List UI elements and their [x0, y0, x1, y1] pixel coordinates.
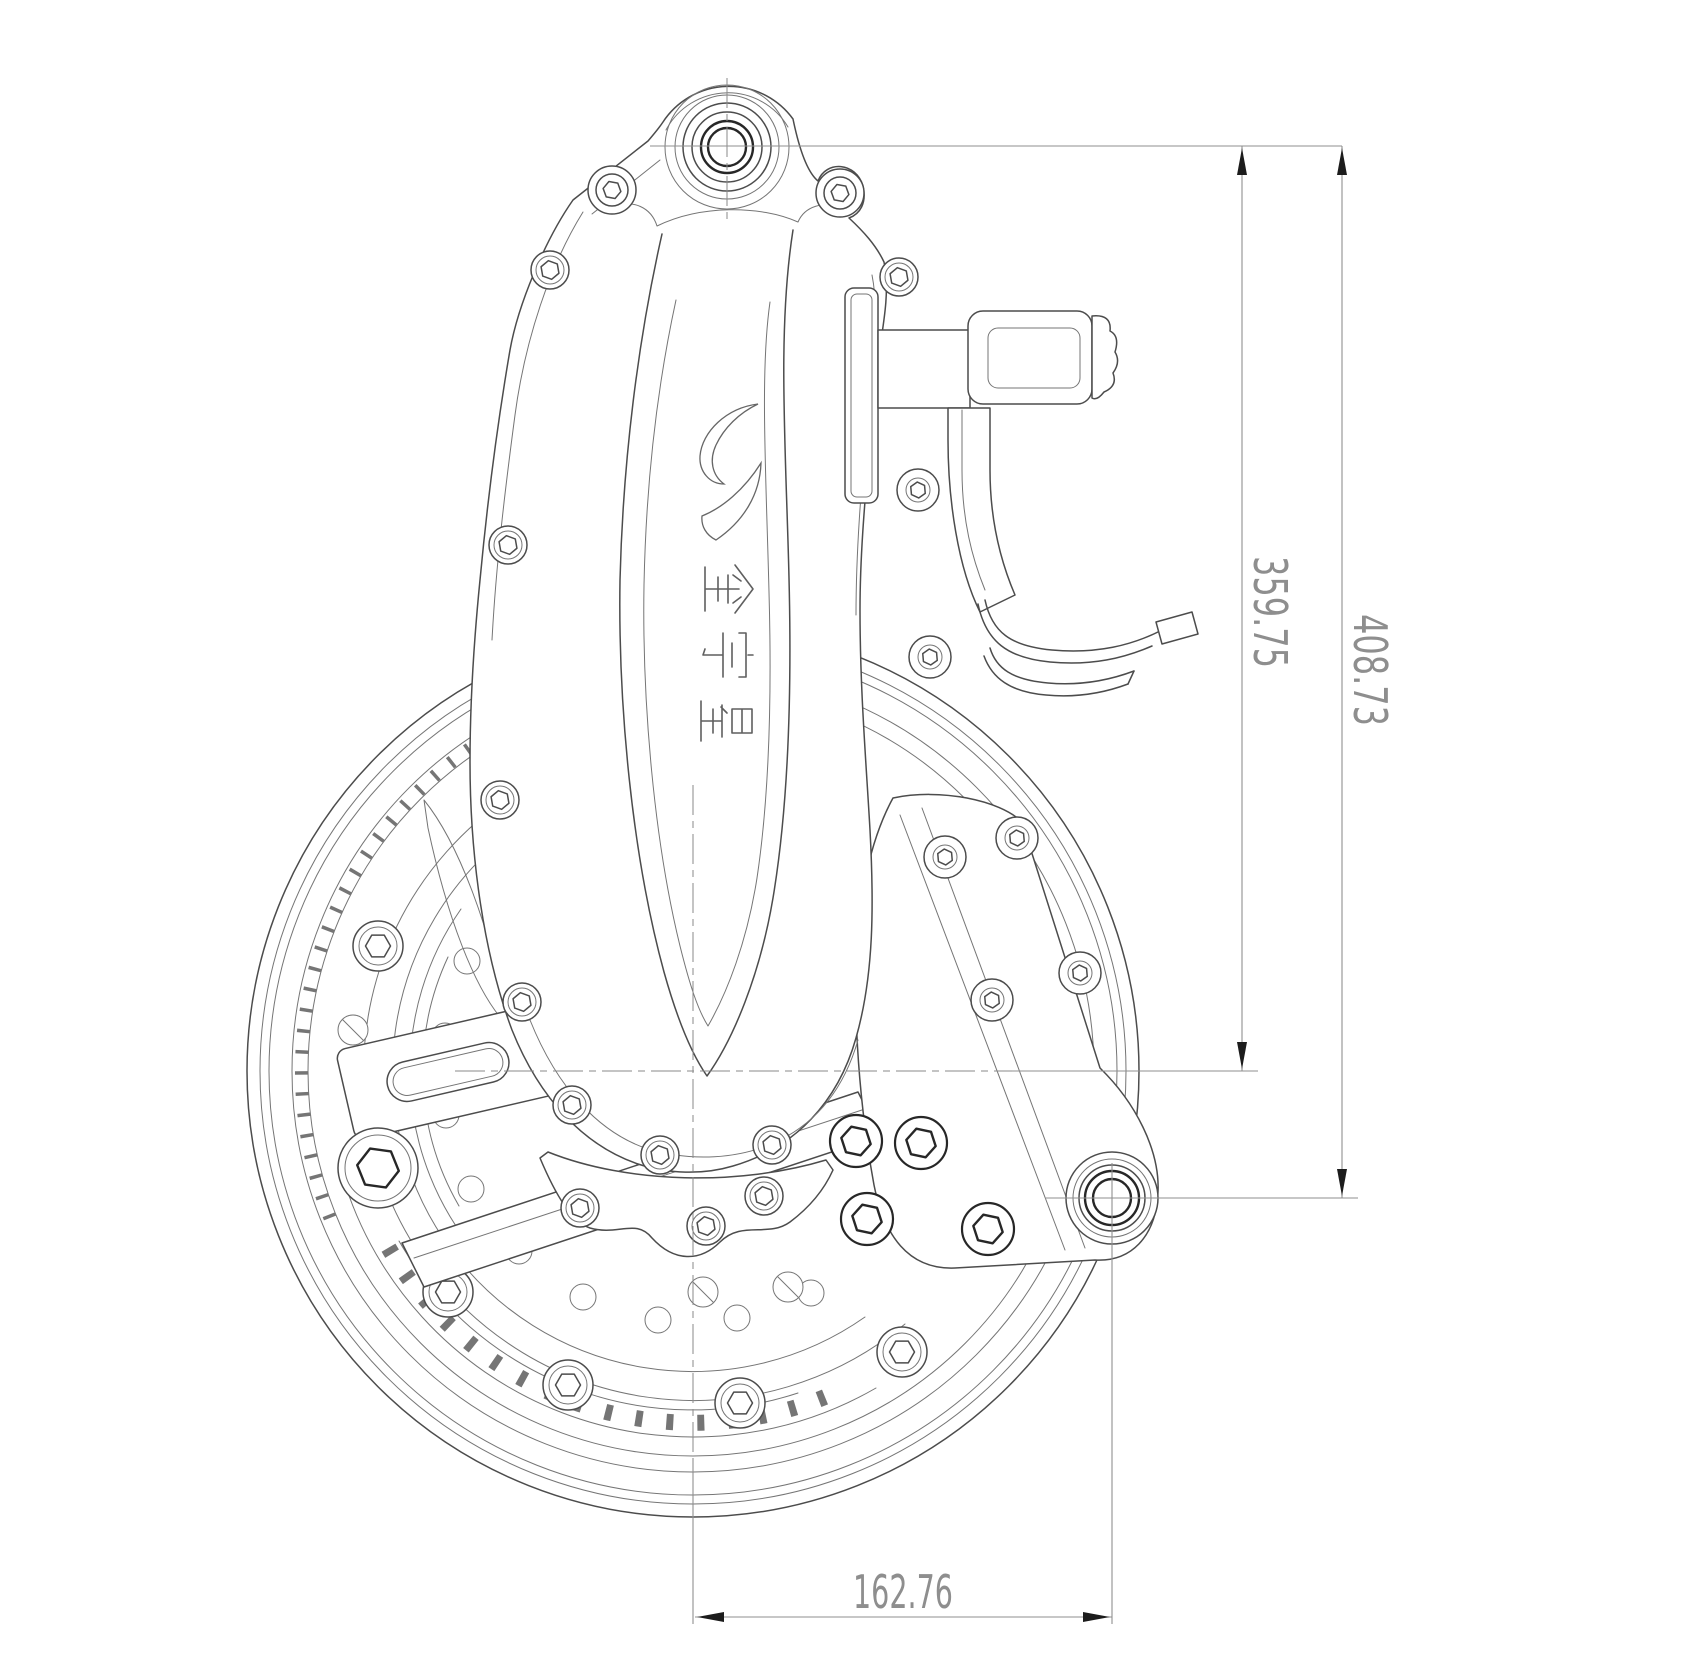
cables	[978, 600, 1198, 696]
plug-end-bellows	[1092, 316, 1118, 399]
right-pivot-plate	[830, 794, 1158, 1268]
arrow-down-408	[1337, 1169, 1347, 1196]
cable-ferrule	[1156, 612, 1198, 644]
arrow-up-408	[1337, 148, 1347, 175]
arrow-down-359	[1237, 1042, 1247, 1069]
arrow-left-162	[697, 1612, 724, 1622]
plug-housing	[968, 311, 1092, 404]
unicycle-suspension-drawing: 359.75 408.73 162.76	[0, 0, 1686, 1680]
dimension-label-horizontal-offset: 162.76	[853, 1565, 953, 1619]
cad-sheet: 金宇星	[0, 0, 1686, 1680]
axle-bolt-boss	[338, 1128, 418, 1208]
connector-arm	[878, 330, 970, 408]
arrow-right-162	[1083, 1612, 1110, 1622]
arrow-up-359	[1237, 148, 1247, 175]
mount-strip	[845, 288, 878, 503]
dimension-label-wheel-center-height: 359.75	[1243, 556, 1297, 668]
dimension-label-overall-height: 408.73	[1343, 614, 1397, 726]
